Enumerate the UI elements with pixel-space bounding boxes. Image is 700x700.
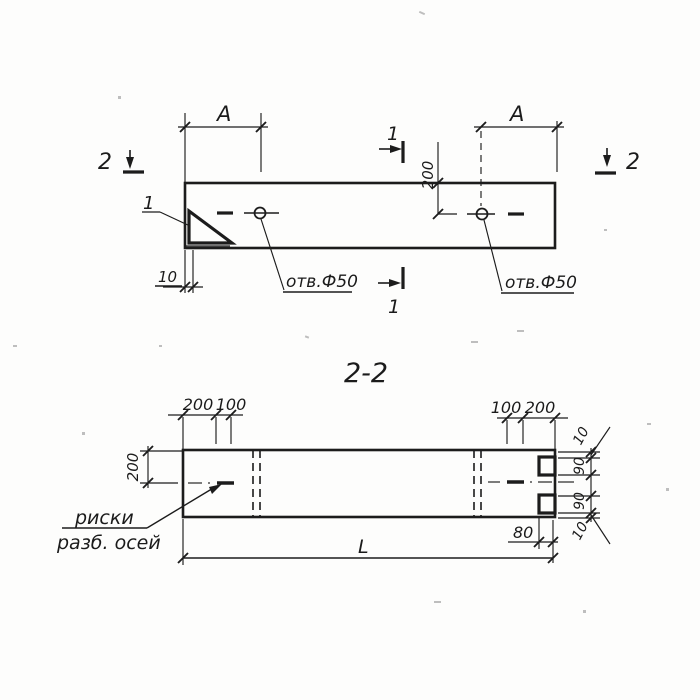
dim-length-l: L	[178, 519, 558, 565]
dim-a-left-text: A	[215, 102, 231, 126]
dim-a-left: A	[178, 102, 268, 183]
section-view: 2-2	[56, 358, 610, 565]
section-1-top-label: 1	[387, 123, 399, 145]
hole-left	[217, 208, 279, 219]
dim-right-90-bottom-text: 90	[572, 492, 588, 510]
axis-marks-line2: разб. осей	[56, 532, 161, 554]
hole-callout-right: отв.Ф50	[484, 220, 577, 293]
dim-left-200-text: 200	[124, 453, 142, 482]
section-beam-outline	[183, 450, 555, 517]
dim-left-200: 200	[124, 446, 183, 488]
hole-label-right: отв.Ф50	[505, 273, 577, 293]
axis-marks-callout: риски разб. осей	[56, 484, 222, 554]
dim-tr-200-text: 200	[525, 398, 556, 417]
section-2-right-label: 2	[626, 150, 640, 175]
dim-top-left: 200 100	[168, 395, 246, 450]
dim-right-10-bottom-text: 10	[569, 519, 592, 542]
section-cut-1-top: 1	[379, 123, 403, 163]
dim-10-plate: 10	[155, 250, 203, 293]
dim-200-offset-text: 200	[419, 161, 437, 190]
notch-bottom	[539, 495, 555, 513]
dim-80: 80	[508, 516, 558, 563]
hidden-hole-left	[253, 450, 260, 517]
section-centerline	[188, 482, 574, 483]
section-cut-2-right: 2	[595, 148, 640, 175]
top-view: 1 отв.Ф50 отв.Ф50	[98, 102, 640, 318]
dim-right-10-top-text: 10	[570, 424, 593, 447]
axis-marks-line1: риски	[74, 507, 134, 529]
hole-callout-left: отв.Ф50	[261, 219, 358, 292]
detail-1-callout: 1	[142, 193, 190, 226]
section-1-bottom-label: 1	[388, 296, 400, 318]
section-title: 2-2	[344, 358, 388, 389]
section-cut-2-left: 2	[98, 150, 144, 175]
drawing-sheet: 1 отв.Ф50 отв.Ф50	[0, 0, 700, 700]
dim-tl-100-text: 100	[216, 395, 247, 414]
detail-1-label: 1	[143, 193, 154, 214]
dim-10-text: 10	[158, 268, 177, 286]
dim-right-90-top-text: 90	[572, 457, 588, 475]
axis-marks-arrow	[209, 484, 222, 494]
corner-plate-detail	[186, 211, 232, 246]
hidden-hole-right	[474, 450, 481, 517]
dim-length-text: L	[358, 536, 369, 558]
dim-80-text: 80	[513, 523, 533, 542]
hole-right	[467, 209, 524, 220]
dim-right-chain: 10 90 90 10	[558, 424, 610, 544]
dim-top-right: 100 200	[491, 398, 568, 450]
dim-tr-100-text: 100	[491, 398, 522, 417]
notch-top	[539, 457, 555, 475]
hole-label-left: отв.Ф50	[286, 272, 358, 292]
dim-200-offset: 200	[419, 142, 457, 219]
section-2-left-label: 2	[98, 150, 112, 175]
technical-drawing: 1 отв.Ф50 отв.Ф50	[0, 0, 700, 700]
plan-beam-outline	[185, 183, 555, 248]
dim-a-right: A	[474, 102, 564, 206]
dim-tl-200-text: 200	[183, 395, 214, 414]
section-cut-1-bottom: 1	[378, 267, 403, 318]
dim-a-right-text: A	[508, 102, 524, 126]
